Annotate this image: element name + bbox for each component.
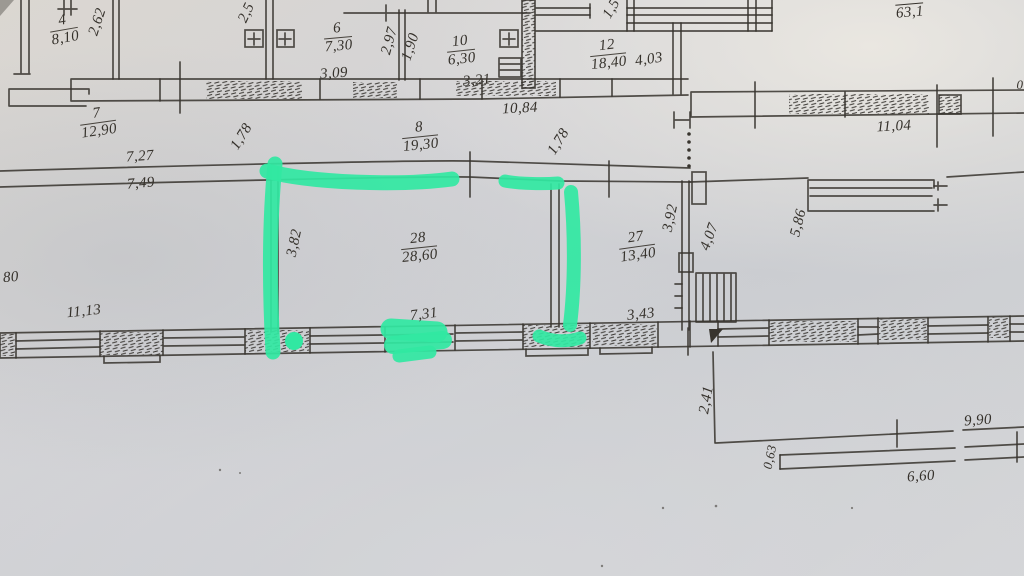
dashed-line <box>687 132 691 168</box>
highlight-bottom-stroke <box>539 336 580 341</box>
highlight-bottom-blob-2 <box>393 340 443 345</box>
dim-7-31: 7,31 <box>409 305 439 325</box>
dim-3-21: 3,21 <box>462 71 491 90</box>
dim-6-60: 6,60 <box>907 468 936 487</box>
dim-63-1: 63,1 <box>895 3 924 22</box>
dim-3-43: 3,43 <box>626 305 655 325</box>
room-12-label: 1218,40 <box>588 36 627 73</box>
highlight-top-wall-2 <box>505 181 558 184</box>
room-10-label: 106,30 <box>445 33 476 69</box>
highlight-bottom-blob <box>391 329 437 332</box>
dim-11-04: 11,04 <box>876 118 911 137</box>
dim-10-84: 10,84 <box>502 100 539 119</box>
highlight-top-wall-1 <box>267 171 452 183</box>
floor-plan-photo: 48,10 67,30 106,30 1218,40 712,90 819,30… <box>0 0 1024 576</box>
highlight-left-wall <box>271 164 275 352</box>
room-28-label: 2828,60 <box>399 229 438 266</box>
room-7-label: 712,90 <box>78 104 118 142</box>
highlight-bottom-blob-3 <box>399 352 430 356</box>
photo-corner-shadow <box>0 0 14 16</box>
plan-drawing <box>0 0 1024 576</box>
room-6-label: 67,30 <box>323 20 354 56</box>
dim-80: 80 <box>2 269 19 287</box>
room-8-label: 819,30 <box>400 118 439 155</box>
dim-3-09: 3,09 <box>320 65 349 84</box>
dim-edge-0: 0 <box>1017 77 1024 93</box>
room-4-label: 48,10 <box>47 11 80 49</box>
highlight-dot <box>285 332 303 350</box>
dim-11-13: 11,13 <box>66 302 102 323</box>
dim-7-49: 7,49 <box>126 174 155 193</box>
room-27-label: 2713,40 <box>617 228 657 266</box>
highlight-right-wall <box>570 192 574 325</box>
ink-specks <box>219 469 853 567</box>
dim-9-90: 9,90 <box>964 412 993 431</box>
wall-lines <box>0 0 1024 567</box>
staircase-icon <box>696 273 736 343</box>
dim-7-27: 7,27 <box>126 148 155 167</box>
